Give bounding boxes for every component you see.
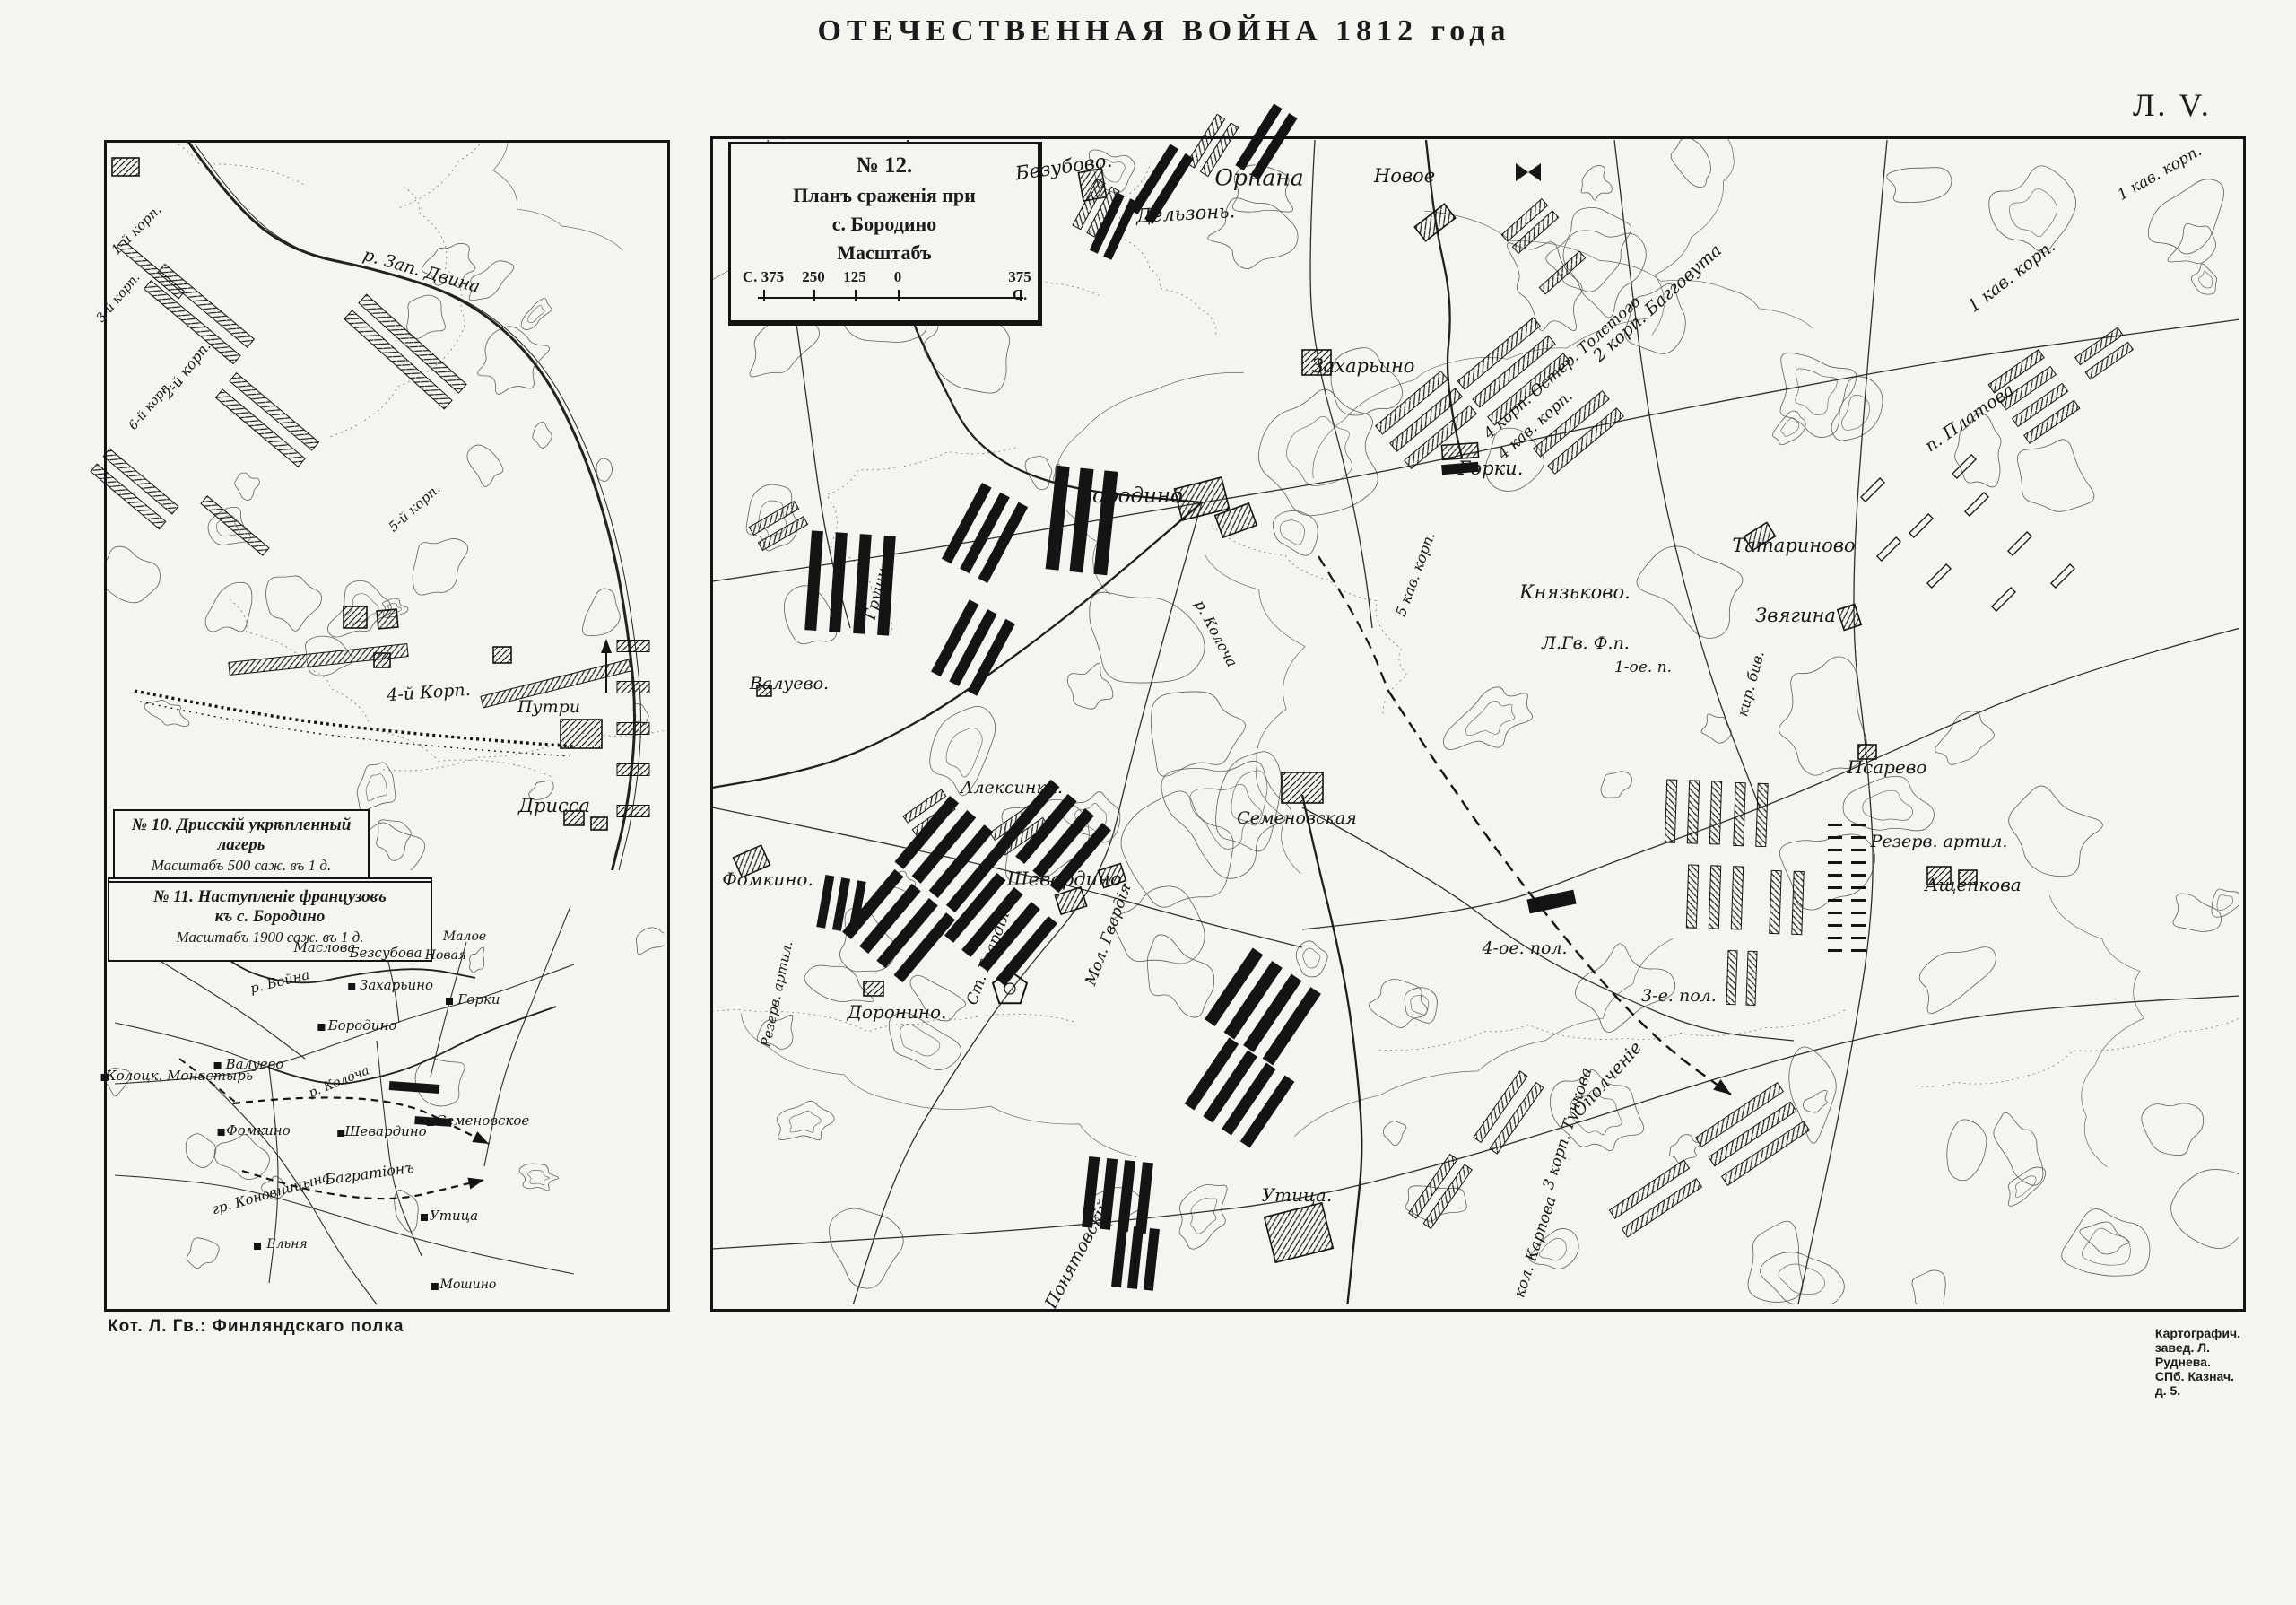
troop-bar-hatched — [617, 682, 649, 693]
troop-bar-hatched — [1501, 199, 1558, 254]
artillery-tick — [1828, 912, 1842, 914]
artillery-tick — [1851, 874, 1865, 877]
village-block — [734, 845, 770, 877]
troop-bar-hatched — [1409, 1155, 1472, 1229]
troop-bar-black — [1130, 144, 1193, 223]
legend-main-line3: Масштабъ — [731, 241, 1038, 265]
legend-approach-line1: № 11. Наступленіе французовъ — [109, 887, 430, 907]
village-dot — [348, 983, 355, 990]
troop-bar-hatched — [1187, 114, 1239, 176]
village-block — [112, 158, 139, 176]
legend-main-map: № 12. Планъ сраженія при с. Бородино Мас… — [728, 142, 1042, 326]
legend-drissa-line1: № 10. Дрисскій укрѣпленный — [115, 816, 368, 835]
troop-bar-hatched — [1665, 780, 1721, 844]
troop-bar-black — [932, 600, 1015, 695]
page-title: ОТЕЧЕСТВЕННАЯ ВОЙНА 1812 года — [818, 14, 1511, 48]
legend-inset-approach: № 11. Наступленіе французовъ къ с. Бород… — [108, 877, 432, 962]
artillery-tick — [1828, 949, 1842, 952]
legend-approach-line2: къ с. Бородино — [109, 907, 430, 927]
village-block — [1441, 443, 1478, 460]
legend-main-line2: с. Бородино — [731, 213, 1038, 236]
troop-bar-black — [817, 876, 865, 934]
village-block — [1927, 867, 1951, 885]
troop-bar-hatched — [1457, 318, 1570, 425]
artillery-tick — [1851, 949, 1865, 952]
troop-bar-hatched — [1988, 350, 2080, 444]
legend-approach-line3: Масштабъ 1900 саж. въ 1 д. — [109, 929, 430, 946]
artillery-tick — [1851, 924, 1865, 927]
artillery-tick — [1828, 874, 1842, 877]
artillery-tick — [1828, 824, 1842, 826]
legend-main-number: № 12. — [731, 153, 1038, 179]
artillery-tick — [1828, 924, 1842, 927]
troop-bar-black — [1046, 466, 1118, 574]
cossack-flag-marker — [1927, 564, 1951, 588]
artillery-tick — [1828, 861, 1842, 864]
village-block — [864, 981, 883, 996]
cossack-flag-marker — [1861, 478, 1884, 502]
village-dot — [317, 1024, 325, 1031]
village-dot — [421, 1214, 428, 1221]
plate-number: Л. V. — [2133, 86, 2212, 124]
troop-bar-hatched — [617, 723, 649, 735]
artillery-tick — [1851, 912, 1865, 914]
troop-bar-black — [1112, 1226, 1160, 1290]
troop-bar-black — [1527, 890, 1576, 912]
village-block — [1099, 863, 1126, 887]
village-block — [1078, 169, 1106, 201]
artillery-tick — [1851, 899, 1865, 902]
windmill-icon — [1516, 163, 1541, 181]
cossack-flag-marker — [1952, 455, 1976, 478]
village-block — [493, 647, 511, 663]
scale-tick-label: 0 — [894, 268, 902, 286]
troop-bar-black — [1205, 948, 1321, 1065]
map-sheet: ОТЕЧЕСТВЕННАЯ ВОЙНА 1812 года Л. V. № 12… — [0, 0, 2296, 1605]
village-block — [1959, 870, 1977, 885]
village-block — [1282, 772, 1323, 803]
troop-bar-black — [1442, 462, 1479, 474]
scale-bar: С. 3752501250375 С. — [736, 268, 1032, 308]
legend-drissa-line2: лагерь — [115, 835, 368, 855]
village-dot — [446, 998, 453, 1005]
artillery-tick — [1828, 899, 1842, 902]
troop-bar-hatched — [617, 764, 649, 776]
troop-bar-hatched — [215, 373, 318, 467]
village-dot — [431, 1283, 439, 1290]
caption-bottom-right: Картографич. завед. Л. Руднева. СПб. Каз… — [2155, 1326, 2240, 1398]
inset-drissa-linework — [96, 0, 829, 886]
troop-bar-hatched — [749, 502, 807, 551]
artillery-tick — [1828, 836, 1842, 839]
cossack-flag-marker — [1965, 493, 1988, 516]
village-block — [564, 811, 584, 825]
troop-bar-black — [805, 531, 895, 635]
cossack-flag-marker — [1877, 537, 1900, 561]
scale-tick-label: 125 — [843, 268, 866, 286]
troop-bar-hatched — [1726, 950, 1757, 1005]
village-block — [1302, 350, 1331, 375]
artillery-tick — [1851, 849, 1865, 851]
artillery-tick — [1828, 937, 1842, 939]
artillery-tick — [1851, 836, 1865, 839]
village-dot — [101, 1074, 109, 1081]
cossack-flag-marker — [2051, 564, 2074, 588]
artillery-tick — [1851, 937, 1865, 939]
village-block — [1858, 745, 1876, 759]
troop-bar-hatched — [1474, 1071, 1544, 1154]
troop-bar-hatched — [481, 659, 631, 708]
troop-bar-black — [1236, 104, 1297, 179]
troop-bar-hatched — [1770, 870, 1804, 934]
village-dot — [214, 1062, 222, 1069]
artillery-tick — [1828, 886, 1842, 889]
village-block — [591, 817, 607, 830]
village-block — [561, 720, 602, 748]
legend-drissa-line3: Масштабъ 500 саж. въ 1 д. — [115, 857, 368, 875]
troop-bar-hatched — [91, 449, 178, 529]
village-block — [1265, 1203, 1334, 1262]
troop-bar-hatched — [201, 496, 269, 555]
troop-bar-hatched — [617, 641, 649, 652]
village-block — [1744, 522, 1776, 550]
village-block — [377, 609, 398, 629]
artillery-tick — [1851, 861, 1865, 864]
troop-bar-hatched — [1686, 865, 1743, 929]
cossack-flag-marker — [1992, 588, 2015, 611]
legend-inset-drissa: № 10. Дрисскій укрѣпленный лагерь Масшта… — [113, 809, 370, 879]
cossack-flag-marker — [1909, 514, 1933, 537]
village-dot — [218, 1129, 225, 1136]
troop-bar-hatched — [344, 294, 466, 409]
artillery-tick — [1851, 886, 1865, 889]
artillery-tick — [1851, 824, 1865, 826]
artillery-tick — [1828, 849, 1842, 851]
map-symbols — [91, 104, 2133, 1290]
village-dot — [427, 1119, 434, 1126]
troop-bar-hatched — [1609, 1160, 1701, 1237]
troop-bar-black — [389, 1082, 439, 1094]
village-block — [1838, 604, 1861, 630]
scale-tick-label: 250 — [802, 268, 825, 286]
legend-main-line1: Планъ сраженія при — [731, 184, 1038, 207]
village-block — [344, 606, 367, 628]
troop-bar-black — [1083, 1157, 1153, 1234]
scale-tick-label: С. 375 — [743, 268, 784, 286]
cossack-flag-marker — [2008, 532, 2031, 555]
map-canvas — [0, 0, 2296, 1605]
village-block — [1414, 204, 1455, 241]
troop-bar-hatched — [1534, 391, 1623, 475]
village-block — [374, 653, 390, 667]
troop-bar-hatched — [1734, 782, 1768, 846]
village-dot — [337, 1130, 344, 1137]
village-dot — [254, 1243, 261, 1250]
village-block — [757, 685, 771, 696]
caption-bottom-left: Кот. Л. Гв.: Финляндскаго полка — [108, 1317, 404, 1337]
troop-bar-hatched — [617, 806, 649, 817]
troop-bar-black — [943, 484, 1028, 583]
